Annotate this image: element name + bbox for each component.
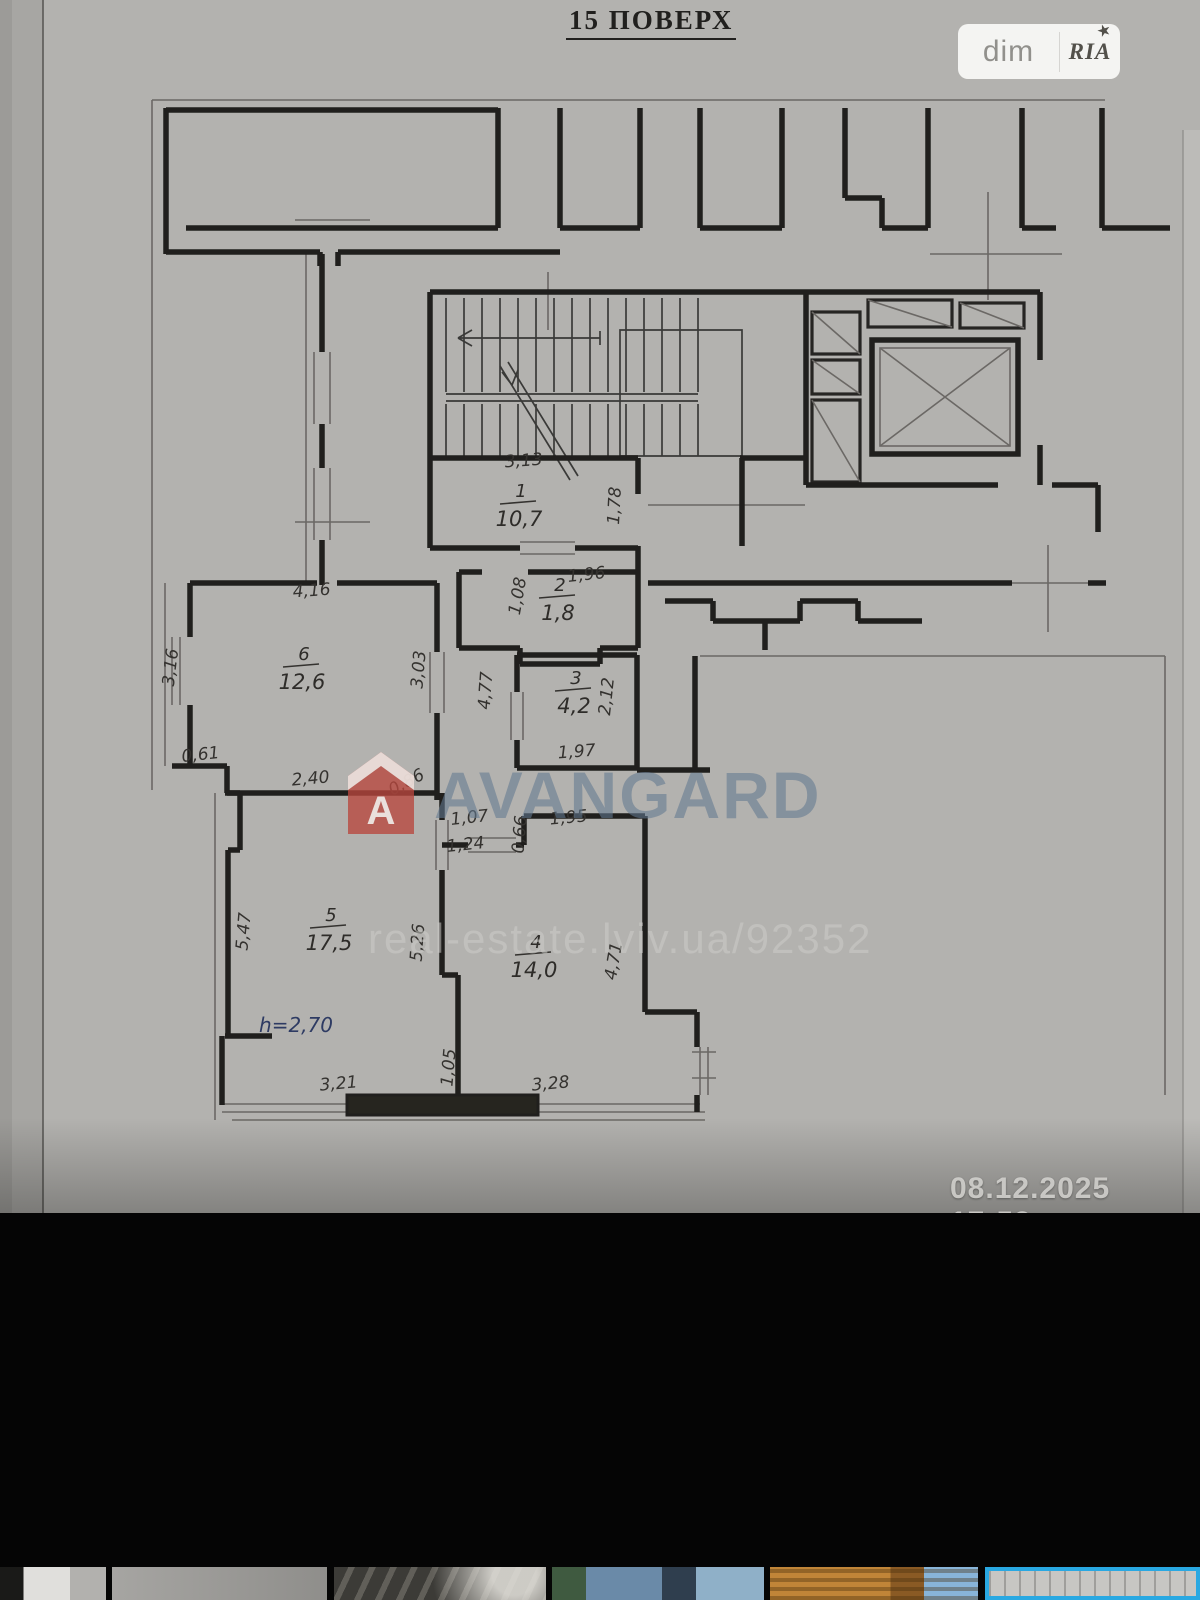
dimension-label: 1,78 <box>604 486 626 525</box>
floor-title: 15 ПОВЕРХ <box>566 5 736 40</box>
room-area-label: 17,5 <box>306 931 353 955</box>
dimension-label: 4,71 <box>601 941 627 982</box>
floor-plan-drawing: 3,131,781,961,084,163,163,030,612,400,86… <box>0 0 1200 1213</box>
gallery-thumbnail[interactable] <box>552 1567 764 1600</box>
ria-star-icon: ★ <box>1096 21 1114 41</box>
dimension-label: 3,21 <box>319 1072 358 1095</box>
dimension-label: 1,07 <box>450 806 490 830</box>
dimension-label: 2,12 <box>595 677 619 717</box>
dimension-label: 1,08 <box>505 576 531 617</box>
room-area-label: 10,7 <box>496 507 543 531</box>
dimension-label: 2,40 <box>291 767 330 790</box>
ria-logo-text: RIA <box>1069 39 1112 64</box>
dimension-label: 3,28 <box>531 1072 571 1095</box>
gallery-thumbnail[interactable] <box>334 1567 546 1600</box>
dimension-label: 1,24 <box>446 833 486 857</box>
room-area-label: 14,0 <box>511 958 558 982</box>
room-area-label: 12,6 <box>279 670 326 694</box>
elevator-x-mark <box>880 348 1010 446</box>
gallery-thumbnail[interactable] <box>770 1567 978 1600</box>
walls-top-band <box>166 108 1170 266</box>
room-number-label: 3 <box>570 668 581 689</box>
paper-left-edge-dark <box>0 0 12 1213</box>
room-number-label: 2 <box>554 575 565 596</box>
dimension-label: 5,26 <box>407 923 430 962</box>
balcony-door-block <box>347 1095 538 1115</box>
letterbox-black-area <box>0 1213 1200 1600</box>
gallery-thumbnail[interactable] <box>112 1567 327 1600</box>
room-number-label: 6 <box>298 644 309 665</box>
walls-rooms-4-5 <box>222 742 710 1112</box>
dimension-label: 0,66 <box>508 815 531 855</box>
paper-right-edge <box>1183 130 1200 1213</box>
dimension-label: 5,47 <box>232 912 255 952</box>
dimension-label: 0,61 <box>181 743 221 767</box>
dimension-label: 4,77 <box>475 671 498 710</box>
elevator-block <box>812 300 1024 482</box>
photo-gallery-strip <box>0 1567 1200 1600</box>
dimension-label: 1,96 <box>567 563 607 587</box>
room-number-label: 5 <box>325 905 336 926</box>
dim-ria-badge[interactable]: dim ★ RIA <box>958 24 1120 79</box>
walls <box>166 108 1170 1115</box>
dimension-label: 1,95 <box>549 806 588 829</box>
dim-logo: dim <box>958 35 1059 69</box>
ria-logo: ★ RIA <box>1060 39 1120 65</box>
dimension-label: 3,13 <box>504 450 543 473</box>
room-number-label: 1 <box>515 481 526 502</box>
dimension-label: 1,05 <box>437 1048 460 1087</box>
dimension-label: 3,03 <box>407 650 430 689</box>
stair-treads <box>446 298 698 456</box>
room-area-label: 1,8 <box>541 601 574 625</box>
floor-plan-photo: 3,131,781,961,084,163,163,030,612,400,86… <box>0 0 1200 1213</box>
screenshot-root: { "photo": { "floor_title": "15 ПОВЕРХ",… <box>0 0 1200 1600</box>
walls-room6 <box>172 254 437 800</box>
dimension-label: 4,16 <box>292 580 331 603</box>
dimension-label: 1,97 <box>557 741 596 764</box>
gallery-thumbnail[interactable] <box>0 1567 106 1600</box>
staircase <box>446 298 742 480</box>
gallery-thumbnail-selected[interactable] <box>985 1567 1200 1600</box>
room-area-label: 4,2 <box>557 694 590 718</box>
room-number-label: 4 <box>530 932 541 953</box>
ceiling-height-note: h=2,70 <box>259 1013 333 1037</box>
